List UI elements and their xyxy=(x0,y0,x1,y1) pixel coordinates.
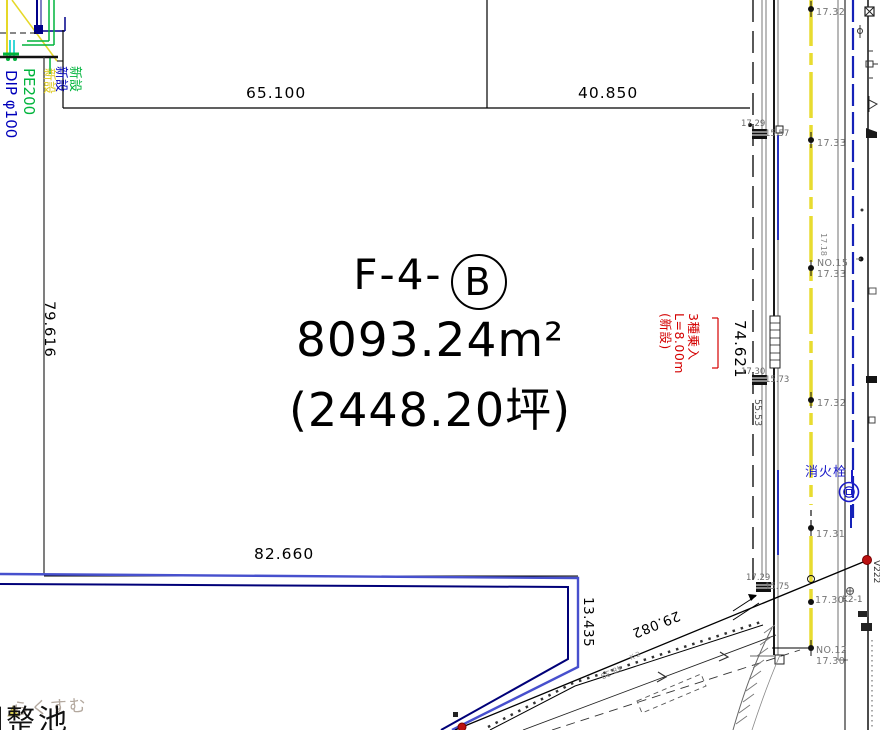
station-elev-2: 17.33 xyxy=(817,270,846,280)
station-no-2: NO.15 xyxy=(817,259,848,269)
road-west-lines xyxy=(748,0,812,664)
road-east-lines xyxy=(838,0,872,730)
dim-left-side: 79.616 xyxy=(41,301,56,358)
station-elev-4: 17.31 xyxy=(816,530,845,540)
dim-south-seg: 13.435 xyxy=(581,597,595,647)
pipe-label-dip100: DIP φ100 xyxy=(2,70,18,138)
entry-note-line3: (新設) xyxy=(658,313,672,374)
label-v222: V222 xyxy=(871,560,880,583)
parcel-id-prefix: F-4- xyxy=(353,250,442,299)
entry-note-line1: 3種乗入 xyxy=(686,313,700,374)
parcel-id-row: F-4-B xyxy=(255,250,605,310)
new-label-yellow: 新設 xyxy=(41,68,55,94)
entry-extent-bracket xyxy=(712,318,718,368)
station-elev-5: 17.30 xyxy=(815,596,844,606)
label-k2-1: K2-1 xyxy=(842,596,863,605)
west-point-1b: 15.73 xyxy=(765,376,789,385)
hydrant-label: 消火栓 xyxy=(805,466,847,480)
utility-structure xyxy=(0,0,65,74)
label-17-18: 17.18 xyxy=(819,233,827,256)
right-edge-symbols xyxy=(847,7,879,631)
station-no-6: NO.12 xyxy=(816,646,847,656)
pipe-label-pe200: PE200 xyxy=(20,68,36,115)
entry-note: 3種乗入 L=8.00m (新設) xyxy=(658,313,700,374)
dim-top-left: 65.100 xyxy=(246,85,306,101)
station-elev-6: 17.30 xyxy=(816,657,845,667)
station-elev-3: 17.32 xyxy=(817,399,846,409)
dim-bottom: 82.660 xyxy=(254,546,314,562)
entry-note-line2: L=8.00m xyxy=(672,313,686,374)
west-point-2b: 15.75 xyxy=(765,583,789,592)
parcel-id-circle: B xyxy=(451,254,507,310)
benchmark-hatch-boxes xyxy=(752,129,771,592)
pond-label: 調整池 xyxy=(0,705,70,730)
dim-top-right: 40.850 xyxy=(578,85,638,101)
new-label-green: 新設 xyxy=(67,66,81,92)
station-elev-1: 17.33 xyxy=(817,139,846,149)
slope-hatch xyxy=(736,625,775,724)
parcel-label-block: F-4-B 8093.24m² (2448.20坪) xyxy=(255,250,605,440)
site-plan-canvas: 65.100 40.850 79.616 82.660 74.621 13.43… xyxy=(0,0,880,730)
dim-road-seg: 55.53 xyxy=(752,399,762,426)
parcel-area-tsubo: (2448.20坪) xyxy=(255,374,605,440)
road-centerline xyxy=(808,0,815,656)
parcel-area: 8093.24m² xyxy=(255,313,605,368)
west-point-0a: 17.29 xyxy=(741,120,765,129)
west-point-1a: 17.30 xyxy=(741,368,765,377)
west-point-0b: 15.57 xyxy=(765,130,789,139)
station-elev-0: 17.32 xyxy=(816,8,845,18)
